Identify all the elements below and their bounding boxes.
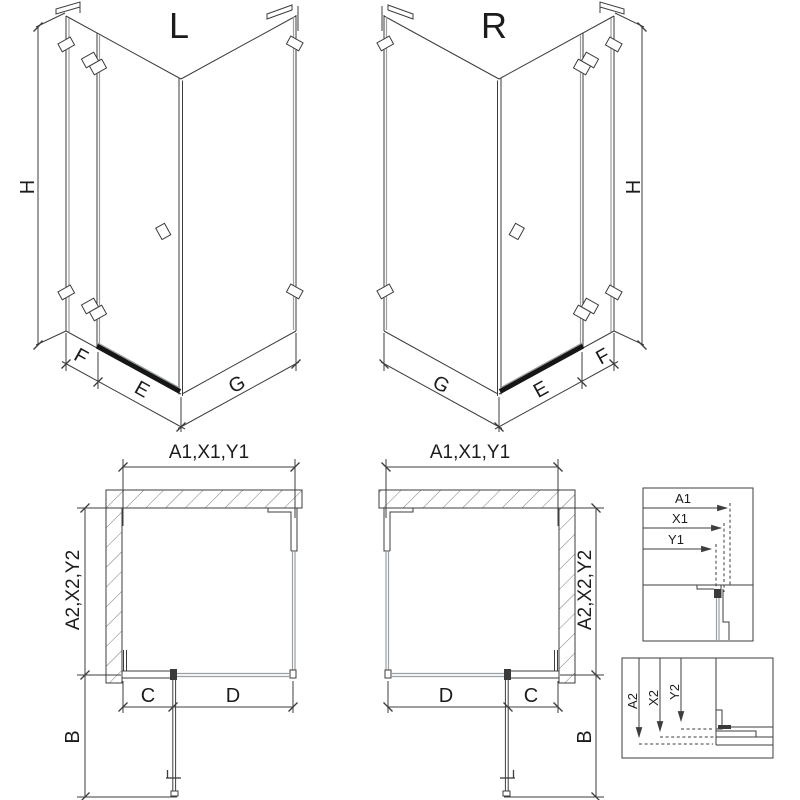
dim-label-door: D: [226, 685, 240, 707]
dim-label-height: H: [623, 180, 645, 194]
dim-label-width: A1,X1,Y1: [169, 442, 249, 463]
wall-hatch-right: [559, 508, 575, 683]
wall-profile-section: [714, 589, 721, 598]
dim-label-door: D: [439, 685, 453, 707]
detail-label-x2: X2: [646, 690, 661, 706]
dim-label-depth: A2,X2,Y2: [63, 550, 84, 630]
view-title-right: R: [481, 5, 507, 46]
detail-label-a1: A1: [675, 491, 691, 506]
wall-hatch-top: [379, 490, 575, 508]
floor-rail-section: [716, 731, 756, 737]
view-title-left: L: [169, 5, 189, 46]
dim-label-height: H: [17, 180, 39, 194]
shower-enclosure-technical-drawing: L H F E G R H F E G A1,X1,Y1 A2,X2,Y2 C …: [0, 0, 800, 800]
dim-label-width: A1,X1,Y1: [430, 442, 510, 463]
detail-label-x1: X1: [672, 511, 688, 526]
dim-label-fixed: C: [141, 685, 155, 707]
drawing-canvas: L H F E G R H F E G A1,X1,Y1 A2,X2,Y2 C …: [0, 0, 800, 800]
detail-label-y1: Y1: [668, 532, 684, 547]
dim-label-swing: B: [62, 730, 84, 743]
detail-label-a2: A2: [625, 693, 640, 709]
dim-label-fixed: C: [524, 685, 538, 707]
wall-hatch-left: [106, 508, 122, 683]
dim-label-depth: A2,X2,Y2: [575, 550, 596, 630]
dim-label-swing: B: [574, 730, 596, 743]
detail-label-y2: Y2: [667, 684, 682, 700]
wall-hatch-top: [106, 490, 302, 508]
